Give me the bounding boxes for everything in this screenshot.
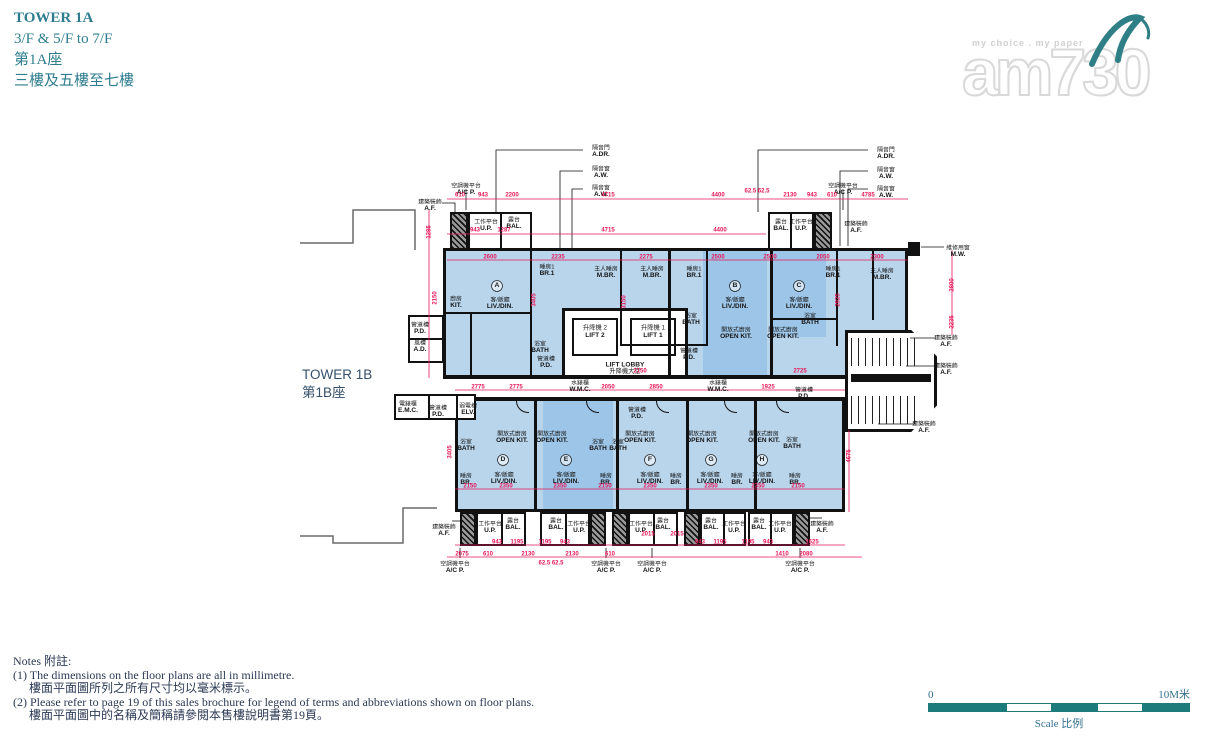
dimension-label: 943: [470, 227, 480, 234]
dimension-label: 2235: [551, 254, 564, 261]
callout-label: 建築裝飾A.F.: [934, 363, 958, 376]
dimension-label: 1285: [426, 225, 433, 238]
room-label: 水錶櫃W.M.C.: [707, 380, 728, 393]
flat-marker: H: [756, 454, 768, 466]
dimension-label: 2350: [751, 483, 764, 490]
dimension-label: 2150: [633, 368, 646, 375]
room-label: 露台BAL.: [655, 518, 670, 531]
dimension-label: 2015: [670, 531, 683, 538]
dimension-label: 943: [695, 539, 705, 546]
dimension-label: 2130: [565, 551, 578, 558]
dimension-label: 2350: [704, 483, 717, 490]
dimension-label: 2050: [601, 384, 614, 391]
scale-caption: Scale 比例: [928, 715, 1190, 731]
room-label: 開放式廚房OPEN KIT.: [767, 327, 799, 340]
dimension-label: 4400: [711, 192, 724, 199]
dimension-label: 1195: [741, 539, 754, 546]
dimension-label: 1195: [538, 539, 551, 546]
dimension-label: 610: [455, 192, 465, 199]
flat-marker: E: [560, 454, 572, 466]
callout-label: 隔音窗A.W.: [592, 166, 610, 179]
dimension-label: 2800: [949, 278, 956, 291]
dimension-label: 2925: [835, 293, 842, 306]
dimension-label: 610: [483, 551, 493, 558]
notes-heading: Notes 附註:: [13, 655, 534, 669]
dimension-label: 2350: [499, 483, 512, 490]
dimension-label: 4785: [861, 192, 874, 199]
scale-bar-graphic: [928, 703, 1190, 712]
callout-label: 維修用窗M.W.: [946, 245, 970, 258]
dimension-label: 2150: [432, 291, 439, 304]
dimension-label: 62.5 62.5: [744, 188, 769, 195]
dimension-label: 2275: [639, 254, 652, 261]
dimension-label: 3405: [447, 445, 454, 458]
dimension-label: 4675: [846, 449, 853, 462]
callout-label: 隔音窗A.W.: [877, 186, 895, 199]
room-label: 管道槽P.D.: [411, 322, 429, 335]
room-label: 露台BAL.: [548, 518, 563, 531]
callout-label: 隔音門A.DR.: [877, 147, 895, 160]
dimension-label: 2150: [791, 483, 804, 490]
plan-labels-layer: 廚房KIT.客/飯廳LIV./DIN.睡房1BR.1主人睡房M.BR.浴室BAT…: [0, 0, 1207, 736]
dimension-label: 62.5 62.5: [538, 560, 563, 567]
dimension-label: 1195: [713, 539, 726, 546]
dimension-label: 2080: [799, 551, 812, 558]
dimension-label: 943: [807, 192, 817, 199]
room-label: 睡房BR.: [731, 473, 743, 486]
dimension-label: 1287: [497, 227, 510, 234]
callout-label: 建築裝飾A.F.: [810, 521, 834, 534]
dimension-label: 1195: [510, 539, 523, 546]
flat-marker: G: [705, 454, 717, 466]
callout-label: 隔音窗A.W.: [877, 167, 895, 180]
dimension-label: 2050: [816, 254, 829, 261]
callout-label: 空調機平台A/C P.: [785, 561, 814, 574]
dimension-label: 943: [763, 539, 773, 546]
dimension-label: 2350: [643, 483, 656, 490]
room-label: 風槽A.D.: [413, 340, 426, 353]
dimension-label: 2775: [509, 384, 522, 391]
callout-label: 建築裝飾A.F.: [934, 335, 958, 348]
dimension-label: 1625: [805, 539, 818, 546]
dimension-label: 2725: [793, 368, 806, 375]
scale-start: 0: [928, 690, 934, 701]
dimension-label: 943: [492, 539, 502, 546]
flat-marker: D: [497, 454, 509, 466]
room-label: 睡房1BR.1: [539, 264, 554, 277]
dimension-label: 2235: [949, 315, 956, 328]
dimension-label: 2150: [598, 483, 611, 490]
room-label: 管道槽P.D.: [680, 348, 698, 361]
room-label: 管道槽P.D.: [795, 387, 813, 400]
dimension-label: 610: [827, 192, 837, 199]
dimension-label: 943: [478, 192, 488, 199]
room-label: 開放式廚房OPEN KIT.: [536, 431, 568, 444]
room-label: 客/飯廳LIV./DIN.: [722, 297, 748, 310]
room-label: 睡房BR.: [670, 473, 682, 486]
room-label: 主人睡房M.BR.: [870, 268, 894, 281]
room-label: 工作平台U.P.: [789, 219, 813, 232]
callout-label: 空調機平台A/C P.: [591, 561, 620, 574]
scale-bar: 0 10M米 Scale 比例: [928, 690, 1190, 731]
note-line: 樓面平面圖所列之所有尺寸均以毫米標示。: [13, 682, 534, 696]
callout-label: 建築裝飾A.F.: [844, 221, 868, 234]
dimension-label: 2775: [471, 384, 484, 391]
room-label: 浴室BATH: [783, 437, 801, 450]
scale-end: 10M米: [1158, 690, 1190, 701]
room-label: 工作平台U.P.: [768, 521, 792, 534]
room-label: 廚房KIT.: [450, 296, 462, 309]
dimension-label: 2500: [763, 254, 776, 261]
room-label: 露台BAL.: [773, 219, 788, 232]
room-label: 開放式廚房OPEN KIT.: [686, 431, 718, 444]
dimension-label: 2075: [455, 551, 468, 558]
brochure-floor-plan-page: TOWER 1A 3/F & 5/F to 7/F 第1A座 三樓及五樓至七樓 …: [0, 0, 1207, 736]
dimension-label: 1925: [761, 384, 774, 391]
dimension-label: 3150: [621, 295, 628, 308]
room-label: 工作平台U.P.: [722, 521, 746, 534]
room-label: 浴室BATH: [682, 313, 700, 326]
room-label: 浴室BATH: [801, 313, 819, 326]
room-label: 開放式廚房OPEN KIT.: [496, 431, 528, 444]
callout-label: 建築裝飾A.F.: [432, 524, 456, 537]
room-label: 浴室BATH: [457, 439, 475, 452]
room-label: 主人睡房M.BR.: [640, 266, 664, 279]
room-label: 開放式廚房OPEN KIT.: [720, 327, 752, 340]
notes-block: Notes 附註: (1) The dimensions on the floo…: [13, 655, 534, 723]
dimension-label: 943: [560, 539, 570, 546]
room-label: 工作平台U.P.: [567, 521, 591, 534]
dimension-label: 2500: [711, 254, 724, 261]
dimension-label: 2300: [870, 254, 883, 261]
callout-label: 空調機平台A/C P.: [440, 561, 469, 574]
callout-label: 隔音門A.DR.: [592, 145, 610, 158]
room-label: 電錶櫃E.M.C.: [398, 401, 418, 414]
dimension-label: 2150: [463, 483, 476, 490]
dimension-label: 2130: [521, 551, 534, 558]
dimension-label: 2850: [649, 384, 662, 391]
room-label: 管道槽P.D.: [628, 407, 646, 420]
room-label: 睡房1BR.1: [825, 266, 840, 279]
dimension-label: 2200: [505, 192, 518, 199]
room-label: 水錶櫃W.M.C.: [569, 380, 590, 393]
room-label: 工作平台U.P.: [478, 521, 502, 534]
dimension-label: 4715: [601, 192, 614, 199]
room-label: 睡房1BR.1: [686, 266, 701, 279]
room-label: 管道槽P.D.: [429, 405, 447, 418]
dimension-label: 2350: [553, 483, 566, 490]
room-label: 開放式廚房OPEN KIT.: [748, 431, 780, 444]
room-label: 開放式廚房OPEN KIT.: [624, 431, 656, 444]
flat-marker: A: [491, 280, 503, 292]
room-label: 管道槽P.D.: [537, 356, 555, 369]
dimension-label: 2130: [783, 192, 796, 199]
room-label: 浴室BATH: [589, 439, 607, 452]
callout-label: 建築裝飾A.F.: [418, 199, 442, 212]
room-label: 露台BAL.: [505, 518, 520, 531]
dimension-label: 610: [605, 551, 615, 558]
flat-marker: B: [729, 280, 741, 292]
dimension-label: 4715: [601, 227, 614, 234]
room-label: 弱電槽ELV.: [459, 403, 477, 416]
dimension-label: 2015: [641, 531, 654, 538]
dimension-label: 3405: [531, 293, 538, 306]
flat-marker: F: [644, 454, 656, 466]
room-label: 浴室BATH: [531, 341, 549, 354]
room-label: 主人睡房M.BR.: [594, 266, 618, 279]
room-label: 露台BAL.: [751, 518, 766, 531]
callout-label: 空調機平台A/C P.: [637, 561, 666, 574]
flat-marker: C: [793, 280, 805, 292]
room-label: 客/飯廳LIV./DIN.: [786, 297, 812, 310]
dimension-label: 2600: [483, 254, 496, 261]
room-label: 浴室BATH: [609, 439, 627, 452]
room-label: 客/飯廳LIV./DIN.: [487, 297, 513, 310]
dimension-label: 1410: [775, 551, 788, 558]
dimension-label: 4400: [713, 227, 726, 234]
callout-label: 建築裝飾A.F.: [912, 421, 936, 434]
note-line: 樓面平面圖中的名稱及簡稱請參閱本售樓說明書第19頁。: [13, 709, 534, 723]
room-label: 露台BAL.: [703, 518, 718, 531]
